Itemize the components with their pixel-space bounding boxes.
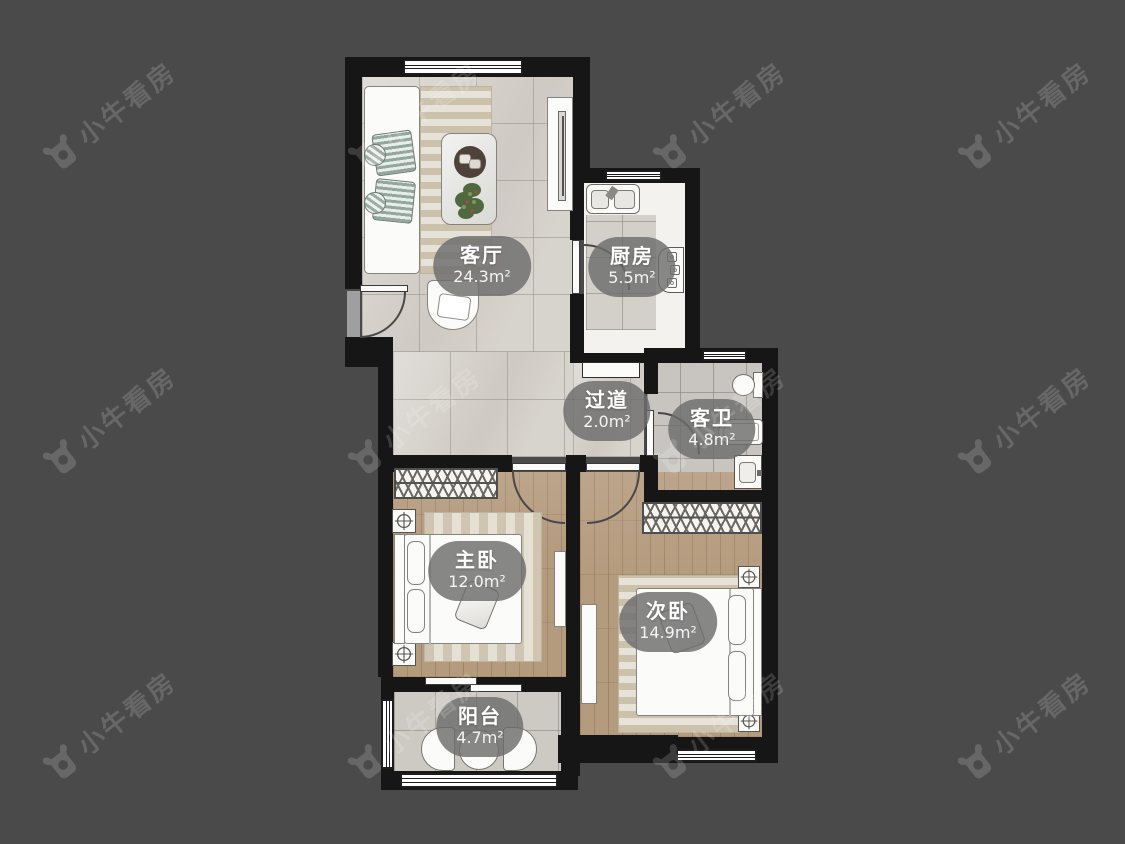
pillow: [407, 589, 425, 633]
wall: [345, 57, 362, 289]
coffee-table: [441, 133, 497, 225]
window: [381, 699, 394, 769]
second-door-leaf: [586, 463, 640, 471]
room-area: 2.0m²: [583, 412, 630, 432]
entry-door-leaf: [360, 285, 408, 292]
standing-mirror: [554, 551, 566, 627]
room-label-second: 次卧 14.9m²: [619, 592, 717, 652]
armchair-pillow: [436, 293, 471, 321]
nightstand-lamp: [392, 642, 416, 666]
window: [702, 350, 747, 361]
window: [676, 749, 757, 762]
room-label-living: 客厅 24.3m²: [433, 236, 531, 296]
bedroom-cabinet: [581, 604, 597, 704]
room-name: 客卫: [688, 406, 735, 430]
second-wardrobe: [642, 502, 762, 534]
room-label-kitchen: 厨房 5.5m²: [588, 237, 675, 297]
wall: [644, 362, 658, 394]
toilet-bowl: [732, 374, 755, 396]
nightstand-lamp: [738, 566, 760, 588]
wall: [558, 735, 678, 763]
tv-icon: [558, 111, 566, 201]
pillow: [407, 541, 425, 585]
wall: [345, 337, 393, 367]
window: [605, 170, 662, 181]
wall: [644, 456, 658, 492]
tray-icon: [454, 146, 486, 178]
wall: [566, 455, 586, 472]
watermark: 小牛看房: [952, 52, 1099, 178]
room-name: 厨房: [608, 244, 655, 268]
room-area: 5.5m²: [608, 268, 655, 288]
master-wardrobe: [394, 468, 498, 499]
wall: [685, 168, 700, 363]
entry-door-sill: [347, 291, 360, 337]
room-name: 阳台: [456, 704, 503, 728]
balcony-sliding-door-panel: [470, 684, 522, 692]
wall: [762, 348, 778, 763]
wall: [566, 472, 580, 677]
room-area: 24.3m²: [453, 267, 511, 287]
room-label-balcony: 阳台 4.7m²: [436, 697, 523, 757]
watermark: 小牛看房: [37, 52, 184, 178]
pouf: [364, 192, 386, 214]
basin: [739, 462, 756, 483]
kitchen-door-leaf: [572, 240, 580, 294]
room-area: 14.9m²: [639, 623, 697, 643]
watermark: 小牛看房: [37, 662, 184, 788]
room-name: 次卧: [639, 599, 697, 623]
room-name: 客厅: [453, 243, 511, 267]
watermark: 小牛看房: [37, 357, 184, 483]
room-label-master: 主卧 12.0m²: [428, 541, 526, 601]
pillow: [728, 651, 746, 701]
wall: [573, 57, 590, 183]
watermark: 小牛看房: [952, 357, 1099, 483]
plant-icon: [452, 180, 488, 220]
floorplan-canvas: 客厅 24.3m² 厨房 5.5m² 过道 2.0m² 客卫 4.8m² 主卧 …: [0, 0, 1125, 844]
room-area: 4.8m²: [688, 430, 735, 450]
faucet-icon: [757, 470, 762, 476]
hallway-cabinet: [582, 362, 640, 378]
kitchen-sink-counter: [586, 184, 640, 214]
pillow: [728, 595, 746, 645]
nightstand-lamp: [392, 509, 416, 533]
living-room-floor-lower: [393, 352, 573, 457]
watermark: 小牛看房: [647, 52, 794, 178]
room-name: 过道: [583, 388, 630, 412]
wall: [378, 367, 393, 677]
master-door-leaf: [512, 463, 566, 471]
wall: [570, 294, 584, 354]
room-label-bathroom: 客卫 4.8m²: [668, 399, 755, 459]
sink-bowl: [614, 190, 635, 209]
room-area: 4.7m²: [456, 728, 503, 748]
room-label-hallway: 过道 2.0m²: [563, 381, 650, 441]
window: [403, 59, 523, 75]
watermark: 小牛看房: [952, 662, 1099, 788]
window: [400, 773, 558, 788]
bathroom-sink: [734, 455, 762, 489]
room-area: 12.0m²: [448, 572, 506, 592]
room-name: 主卧: [448, 548, 506, 572]
pouf: [364, 144, 386, 166]
